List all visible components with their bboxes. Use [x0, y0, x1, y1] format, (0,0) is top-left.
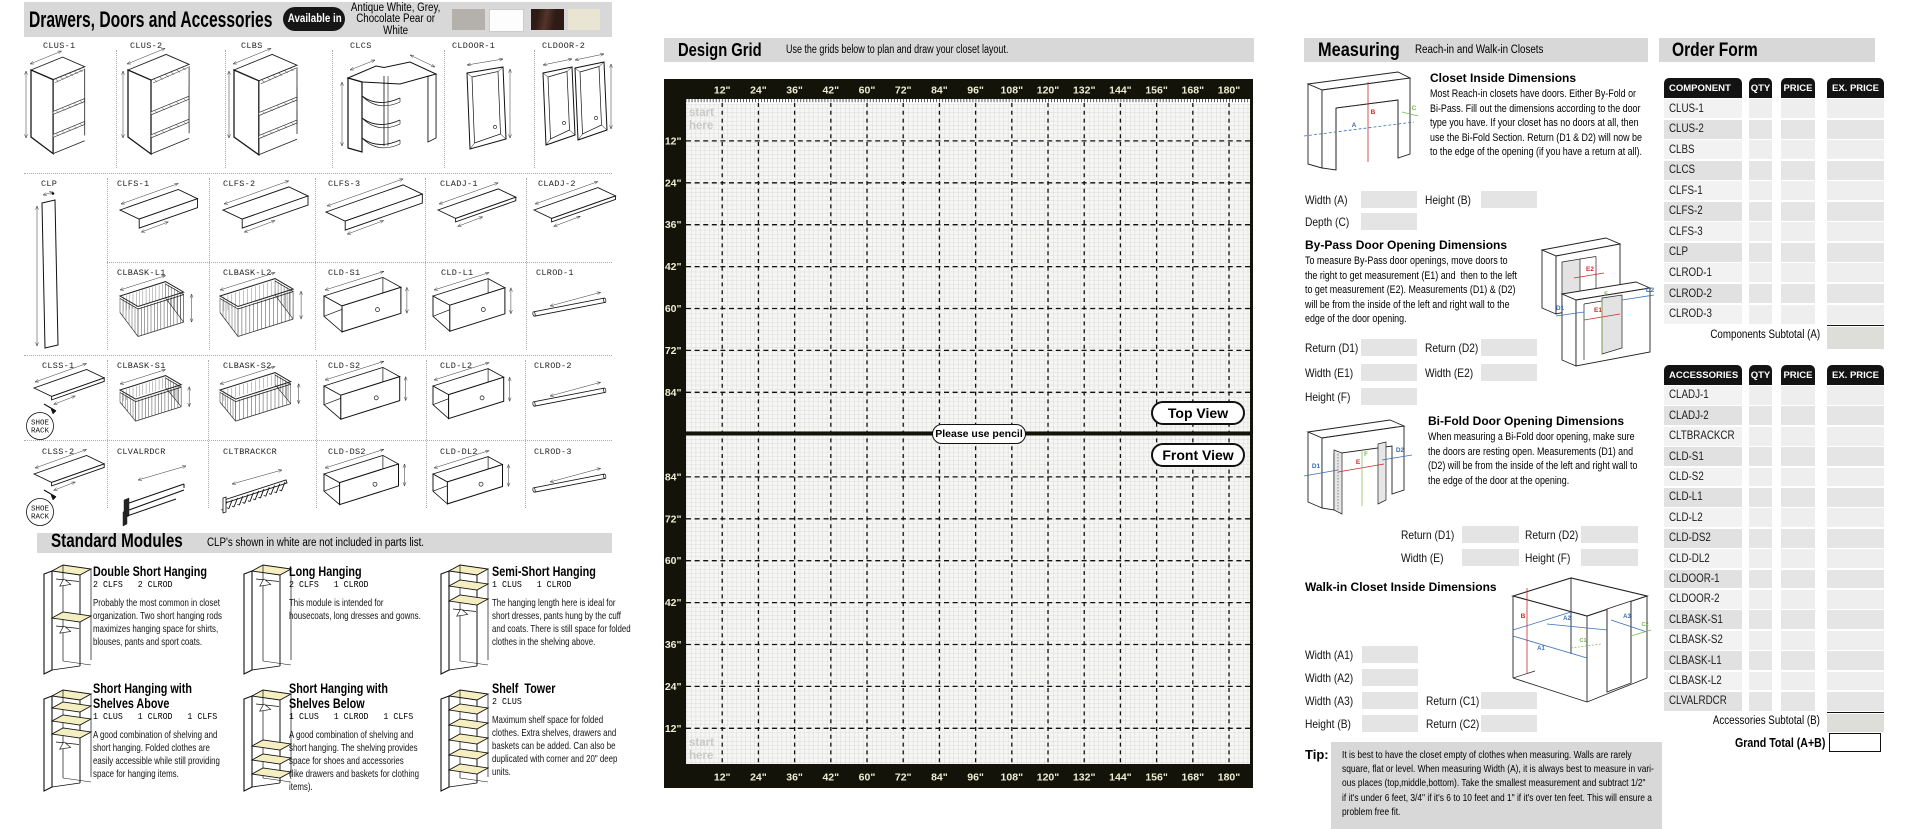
svg-text:36": 36" [786, 85, 803, 97]
svg-text:132": 132" [1073, 772, 1096, 784]
svg-text:F: F [1364, 452, 1368, 458]
svg-text:D1: D1 [1556, 305, 1565, 312]
svg-text:60": 60" [859, 85, 876, 97]
svg-text:84": 84" [931, 772, 948, 784]
svg-text:A: A [1352, 122, 1357, 129]
svg-text:D2: D2 [1646, 287, 1655, 294]
svg-text:144": 144" [1109, 772, 1132, 784]
svg-text:84": 84" [665, 471, 682, 483]
svg-text:144": 144" [1109, 85, 1132, 97]
svg-text:24": 24" [750, 772, 767, 784]
svg-text:120": 120" [1037, 772, 1060, 784]
svg-text:42": 42" [665, 597, 682, 609]
svg-text:A2: A2 [1563, 616, 1571, 622]
svg-text:180": 180" [1218, 772, 1241, 784]
svg-text:F: F [1604, 292, 1608, 298]
svg-text:60": 60" [665, 555, 682, 567]
svg-text:72": 72" [895, 772, 912, 784]
svg-text:A1: A1 [1537, 646, 1545, 652]
svg-text:12": 12" [665, 135, 682, 147]
svg-text:156": 156" [1145, 85, 1168, 97]
svg-text:72": 72" [665, 513, 682, 525]
svg-text:D1: D1 [1312, 463, 1321, 470]
svg-text:168": 168" [1182, 85, 1205, 97]
svg-text:RACK: RACK [31, 514, 50, 522]
svg-text:24": 24" [750, 85, 767, 97]
svg-text:84": 84" [665, 387, 682, 399]
svg-text:96": 96" [967, 772, 984, 784]
svg-text:C: C [1412, 105, 1417, 112]
svg-text:36": 36" [665, 219, 682, 231]
svg-text:72": 72" [895, 85, 912, 97]
svg-text:12": 12" [665, 723, 682, 735]
svg-text:A3: A3 [1623, 614, 1631, 620]
svg-text:60": 60" [859, 772, 876, 784]
svg-text:84": 84" [931, 85, 948, 97]
svg-text:SHOE: SHOE [31, 420, 50, 428]
svg-text:42": 42" [822, 85, 839, 97]
svg-text:B: B [1371, 109, 1376, 116]
svg-text:C2: C2 [1641, 622, 1648, 628]
svg-text:108": 108" [1001, 772, 1024, 784]
svg-text:36": 36" [786, 772, 803, 784]
svg-text:12": 12" [714, 85, 731, 97]
svg-text:120": 120" [1037, 85, 1060, 97]
svg-text:12": 12" [714, 772, 731, 784]
svg-text:here: here [689, 120, 713, 132]
svg-text:24": 24" [665, 681, 682, 693]
svg-text:D2: D2 [1396, 447, 1405, 454]
svg-text:42": 42" [665, 261, 682, 273]
svg-text:96": 96" [967, 85, 984, 97]
svg-text:108": 108" [1001, 85, 1024, 97]
svg-text:168": 168" [1182, 772, 1205, 784]
svg-text:42": 42" [822, 772, 839, 784]
svg-text:E2: E2 [1586, 266, 1594, 273]
svg-text:start: start [689, 737, 714, 749]
svg-text:24": 24" [665, 177, 682, 189]
svg-text:here: here [689, 750, 713, 762]
svg-text:RACK: RACK [31, 428, 50, 436]
svg-text:72": 72" [665, 345, 682, 357]
svg-text:E: E [1356, 459, 1361, 466]
svg-text:B: B [1521, 613, 1526, 620]
svg-text:36": 36" [665, 639, 682, 651]
svg-text:132": 132" [1073, 85, 1096, 97]
svg-text:180": 180" [1218, 85, 1241, 97]
svg-text:start: start [689, 107, 714, 119]
svg-text:60": 60" [665, 303, 682, 315]
svg-text:SHOE: SHOE [31, 506, 50, 514]
svg-text:156": 156" [1145, 772, 1168, 784]
svg-text:E1: E1 [1594, 307, 1602, 314]
svg-text:C1: C1 [1579, 638, 1586, 644]
